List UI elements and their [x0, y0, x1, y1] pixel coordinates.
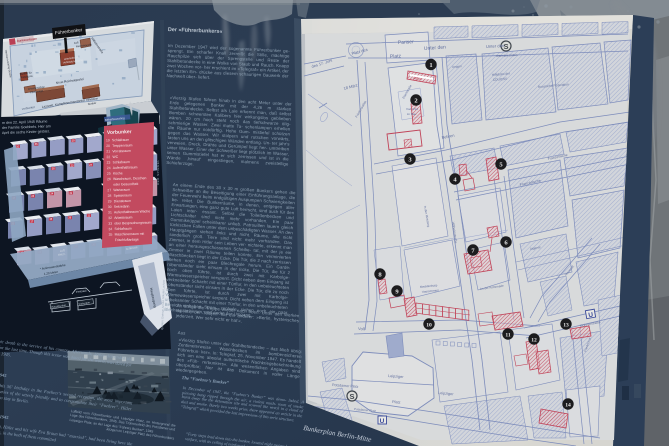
- svg-text:Arbeitsraum: Arbeitsraum: [114, 215, 133, 220]
- svg-text:Sekretärin: Sekretärin: [114, 204, 130, 208]
- svg-text:U: U: [380, 418, 385, 425]
- svg-text:Vorratsraum: Vorratsraum: [112, 149, 131, 154]
- svg-text:24: 24: [107, 166, 111, 170]
- svg-text:23: 23: [107, 161, 111, 165]
- svg-text:Voß: Voß: [358, 326, 366, 331]
- svg-text:WC: WC: [112, 155, 118, 159]
- svg-text:22: 22: [106, 155, 110, 159]
- svg-text:21: 21: [106, 149, 110, 153]
- svg-text:Platz: Platz: [392, 400, 401, 405]
- svg-text:Unter den: Unter den: [486, 43, 505, 49]
- svg-text:Speiseraum: Speiseraum: [114, 193, 132, 198]
- svg-text:30: 30: [108, 205, 112, 209]
- svg-text:Platz: Platz: [390, 53, 402, 60]
- svg-text:Schlafraum: Schlafraum: [112, 138, 129, 142]
- svg-text:33: 33: [108, 222, 112, 226]
- svg-text:Küche: Küche: [113, 171, 123, 175]
- svg-text:Vod USA: Vod USA: [406, 107, 418, 111]
- svg-text:oder Gesundheit: oder Gesundheit: [113, 182, 138, 187]
- svg-text:Warteraum: Warteraum: [113, 188, 130, 192]
- svg-text:34: 34: [108, 227, 112, 231]
- svg-text:12: 12: [531, 337, 537, 343]
- svg-text:Treppenraum: Treppenraum: [112, 143, 133, 148]
- svg-text:Maschinenraum mit: Maschinenraum mit: [115, 232, 145, 237]
- svg-text:Aufenthaltsraum: Aufenthaltsraum: [113, 165, 138, 170]
- svg-text:32: 32: [108, 216, 112, 220]
- svg-text:11: 11: [505, 332, 510, 338]
- svg-text:im Bau: im Bau: [407, 112, 417, 116]
- svg-text:25: 25: [107, 172, 111, 176]
- svg-text:1: 1: [429, 62, 432, 69]
- svg-text:31: 31: [108, 210, 112, 214]
- svg-text:19: 19: [106, 138, 110, 142]
- svg-text:14: 14: [565, 402, 571, 408]
- svg-text:Schlafraum: Schlafraum: [114, 227, 131, 231]
- svg-text:26: 26: [107, 177, 111, 181]
- svg-text:28: 28: [108, 194, 112, 198]
- svg-text:Pariser: Pariser: [398, 39, 414, 46]
- svg-text:Dienstraum: Dienstraum: [114, 199, 132, 203]
- svg-text:Frischluftanlage: Frischluftanlage: [115, 237, 139, 242]
- svg-text:Schlafraum: Schlafraum: [113, 160, 130, 164]
- svg-text:35: 35: [109, 233, 113, 237]
- svg-text:10: 10: [426, 322, 432, 328]
- svg-text:13: 13: [563, 322, 569, 328]
- svg-text:27: 27: [107, 188, 111, 192]
- svg-text:20: 20: [106, 144, 110, 148]
- svg-text:DER SPIEGEL: DER SPIEGEL: [156, 159, 160, 185]
- svg-text:29: 29: [108, 199, 112, 203]
- svg-text:S: S: [349, 392, 354, 401]
- svg-text:Vorbunker: Vorbunker: [107, 129, 132, 136]
